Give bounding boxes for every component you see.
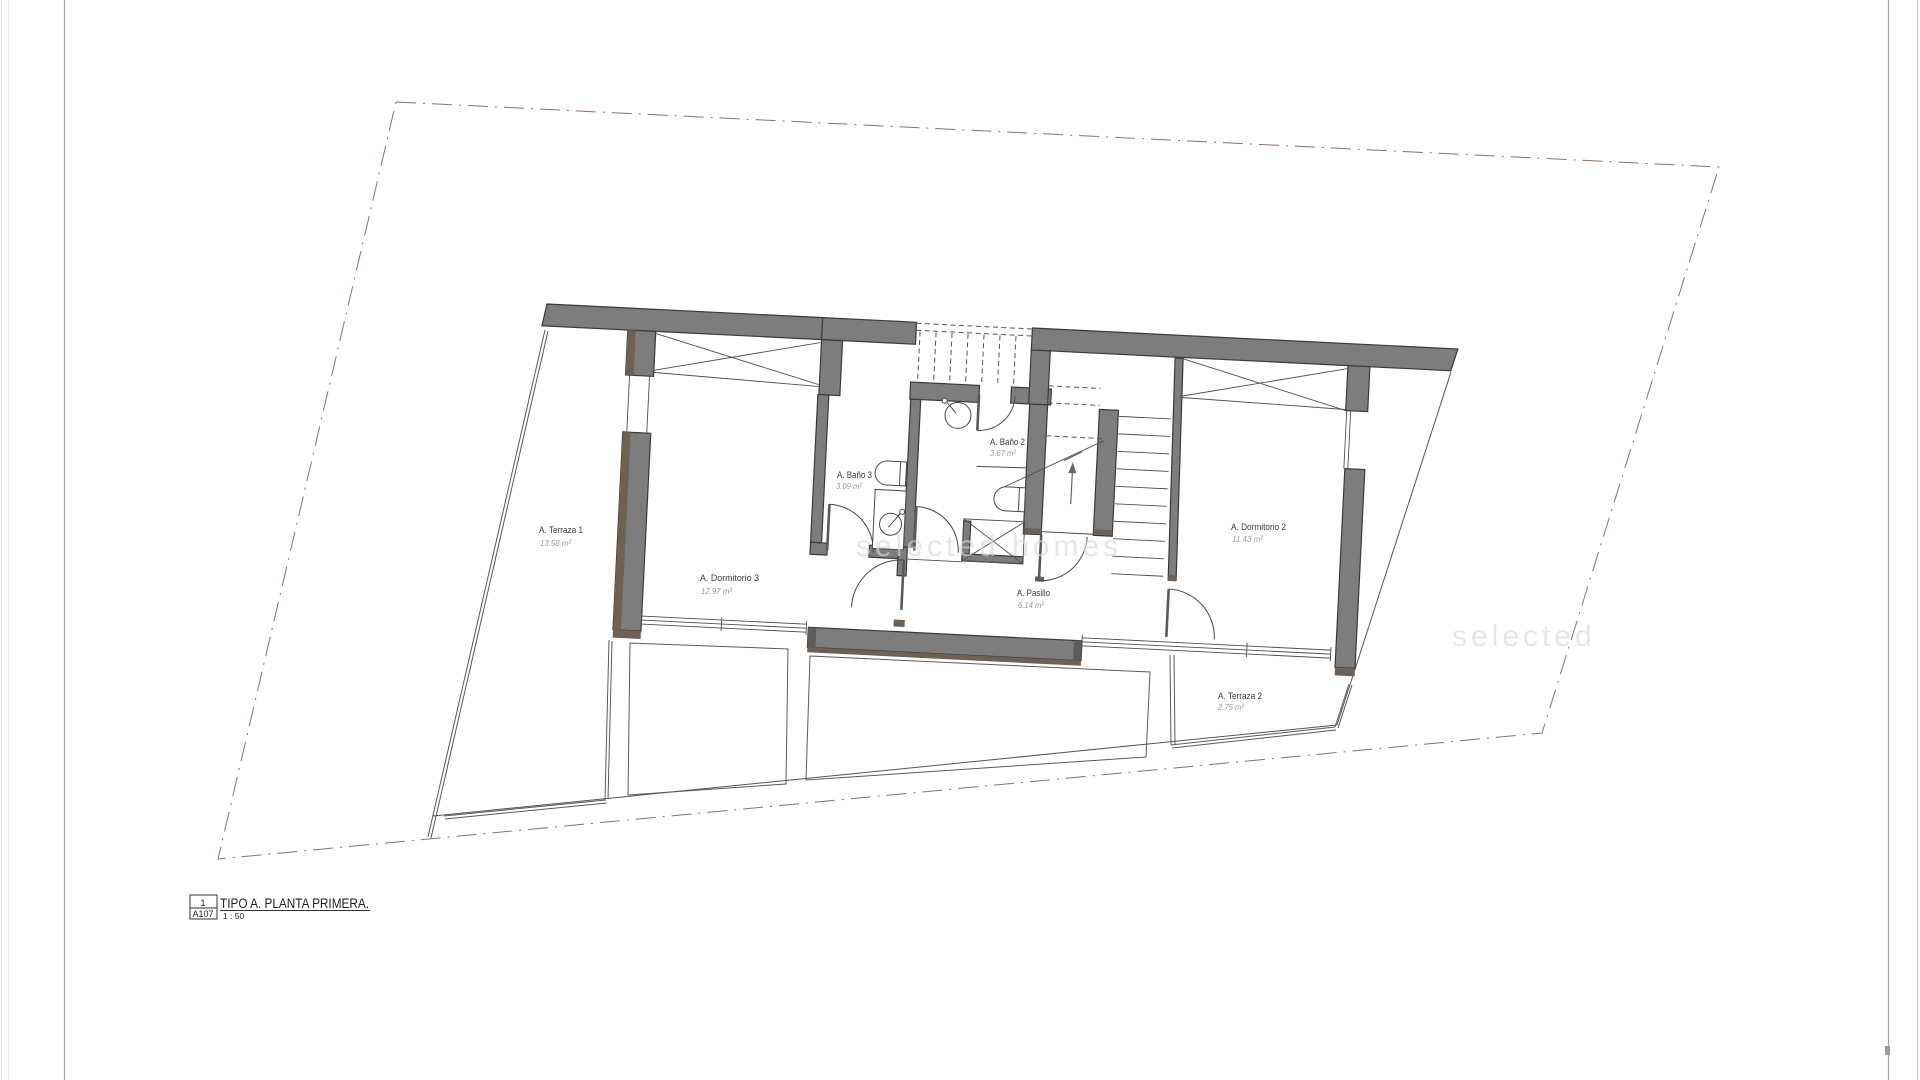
svg-text:3.09 m²: 3.09 m²	[836, 481, 863, 491]
svg-text:1 : 50: 1 : 50	[223, 911, 245, 921]
svg-text:A. Pasillo: A. Pasillo	[1017, 588, 1050, 599]
svg-text:6.14 m²: 6.14 m²	[1018, 600, 1045, 610]
svg-text:selected: selected	[1452, 620, 1596, 653]
svg-text:13.58 m²: 13.58 m²	[540, 538, 572, 548]
svg-text:A. Terraza 1: A. Terraza 1	[539, 525, 583, 536]
svg-text:A. Baño 3: A. Baño 3	[837, 470, 872, 481]
svg-text:A. Dormitorio 2: A. Dormitorio 2	[1231, 522, 1286, 533]
svg-text:A. Dormitorio 3: A. Dormitorio 3	[700, 573, 759, 584]
svg-text:A. Terraza 2: A. Terraza 2	[1218, 691, 1262, 702]
svg-text:A. Baño 2: A. Baño 2	[990, 437, 1025, 448]
svg-text:A107: A107	[192, 909, 213, 919]
svg-text:12.97 m²: 12.97 m²	[701, 586, 733, 596]
svg-text:1: 1	[200, 898, 205, 908]
svg-text:TIPO A. PLANTA PRIMERA.: TIPO A. PLANTA PRIMERA.	[220, 896, 369, 911]
svg-text:selected homes: selected homes	[856, 530, 1122, 563]
svg-text:3.67 m²: 3.67 m²	[990, 448, 1017, 458]
svg-text:2.75 m²: 2.75 m²	[1217, 702, 1245, 712]
svg-text:11.43 m²: 11.43 m²	[1232, 534, 1264, 544]
